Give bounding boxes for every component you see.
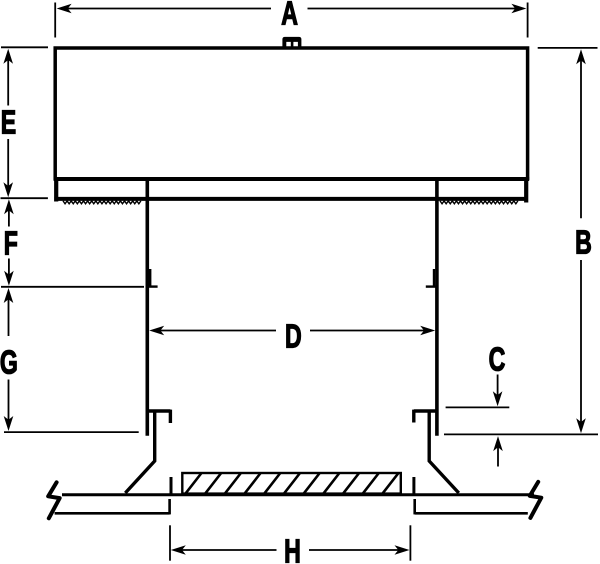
svg-text:D: D: [285, 318, 302, 355]
svg-text:E: E: [1, 105, 16, 142]
svg-text:G: G: [0, 345, 18, 382]
svg-text:B: B: [575, 224, 592, 261]
svg-text:C: C: [489, 341, 506, 378]
svg-text:A: A: [281, 0, 298, 33]
svg-text:F: F: [4, 226, 18, 263]
svg-text:H: H: [284, 534, 301, 564]
